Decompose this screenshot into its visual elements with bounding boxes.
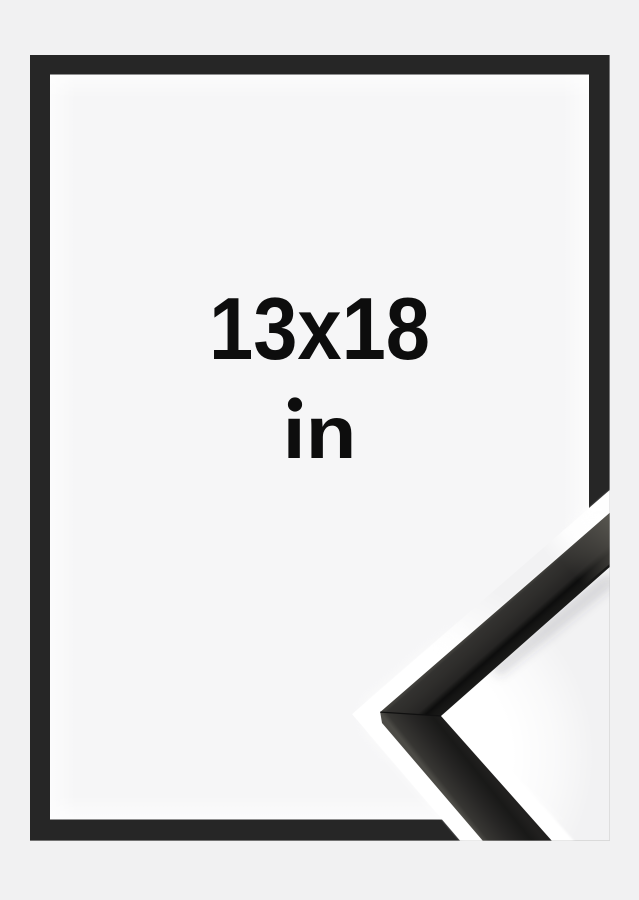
svg-text:13x18: 13x18 (209, 279, 430, 378)
